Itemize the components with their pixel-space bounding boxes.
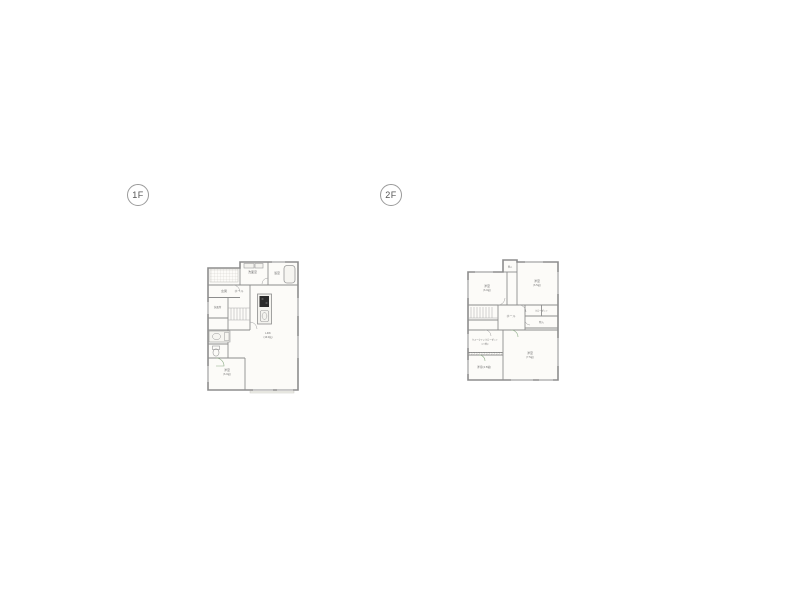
floor-2f-badge: 2F <box>380 184 402 206</box>
label-ldk-size: (16.0帖) <box>263 335 272 339</box>
bathtub-icon <box>284 266 295 284</box>
label-room-se-size: (7.5帖) <box>526 355 534 359</box>
label-bedroom-1f: 洋室 <box>224 367 230 372</box>
hatched-wall <box>468 353 503 356</box>
label-room-ne-size: (6.5帖) <box>533 283 541 287</box>
label-room-nw-size: (6.0帖) <box>483 288 491 292</box>
label-ldk: LDK <box>265 331 271 335</box>
stove-burner-icon <box>265 302 267 304</box>
stove-burner-icon <box>261 298 263 300</box>
label-wash-1f: 洗面室 <box>248 269 257 274</box>
label-room-se: 洋室 <box>527 350 533 355</box>
label-lavatory-1f: 洗面所 <box>214 305 222 309</box>
label-room-nw: 洋室 <box>484 283 490 288</box>
label-room-ne: 洋室 <box>534 278 540 283</box>
entrance-porch <box>210 269 238 282</box>
label-hall-2f: ホール <box>506 313 515 318</box>
terrace-step <box>250 391 294 393</box>
washroom-counter <box>244 264 263 269</box>
label-hall-1f: ホール <box>234 288 243 293</box>
label-bedroom-size-1f: (6.0帖) <box>223 372 231 376</box>
stove-icon <box>260 296 270 307</box>
label-room-sw: 洋室(4.5帖) <box>477 365 491 369</box>
floorplan-page: 1F 2F <box>0 0 800 600</box>
label-entrance-1f: 玄関 <box>221 288 227 293</box>
floor-1f-badge: 1F <box>127 184 149 206</box>
floorplan-1f: 洗面室 浴室 玄関 ホール 洗面所 洋室 (6.0帖) LDK (16.0帖) <box>205 258 300 394</box>
label-bath-1f: 浴室 <box>274 270 280 275</box>
label-storage-2f: 物入 <box>539 320 545 324</box>
floorplan-2f: 物入 洋室 (6.0帖) 洋室 (6.5帖) ホール クローゼット 物入 ウォー… <box>465 258 560 388</box>
